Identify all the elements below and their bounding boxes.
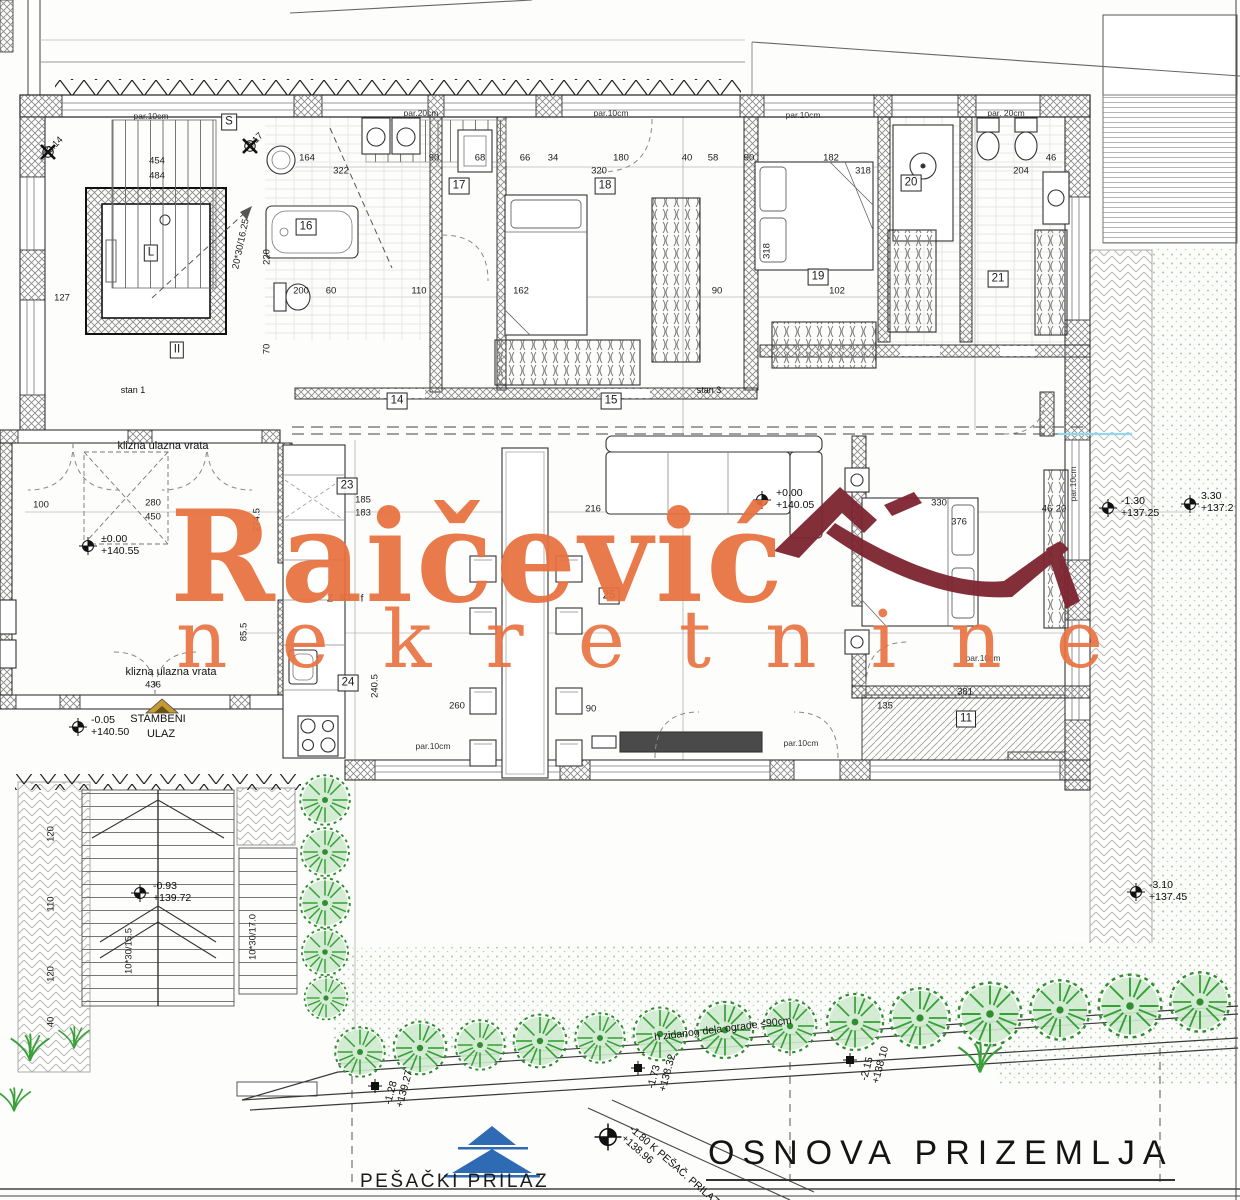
room-label: 20 [901, 175, 922, 192]
dimension-label: 40 [682, 153, 693, 164]
room-label: 17 [449, 178, 470, 195]
dimension-label: 318 [855, 166, 871, 177]
dimension-label: 68 [475, 153, 486, 164]
level-marker: 3.30+137.2 [1201, 491, 1233, 515]
room-label: 21 [988, 271, 1009, 288]
dimension-label: 381 [957, 687, 973, 698]
dimension-label: 20*30/16.25 [230, 218, 251, 270]
dimension-label: 260 [449, 701, 465, 712]
annotation: stan 1 [121, 385, 146, 395]
wall-note: par.10cm [784, 738, 819, 748]
dimension-label: 182 [823, 153, 839, 164]
level-marker-absolute-level: +139.72 [153, 893, 191, 905]
dimension-label: 180 [613, 153, 629, 164]
room-label: 19 [808, 269, 829, 286]
dimension-label: 90 [429, 153, 440, 164]
dimension-label: 320 [591, 166, 607, 177]
dimension-label: -2.17 [242, 130, 265, 153]
annotation: stan 3 [697, 385, 722, 395]
annotation: ULAZ [147, 728, 175, 740]
level-marker-absolute-level: +137.45 [1149, 892, 1187, 904]
dimension-label: 280 [145, 498, 161, 509]
room-label: 15 [601, 393, 622, 410]
level-marker-relative-level: -0.93 [153, 881, 191, 893]
level-marker-relative-level: -1.30 [1121, 496, 1159, 508]
dimension-label: 66 [520, 153, 531, 164]
dimension-label: 200 [293, 286, 309, 297]
dimension-label: 34 [548, 153, 559, 164]
dimension-label: 110 [411, 286, 426, 297]
level-marker: -1.30+137.25 [1121, 496, 1159, 520]
room-label: S [221, 114, 237, 131]
dimension-label: 454 [149, 156, 165, 167]
level-marker-relative-level: ±0.00 [101, 534, 139, 546]
level-marker-absolute-level: +137.2 [1201, 503, 1233, 515]
dimension-label: 120 [46, 966, 57, 982]
dimension-label: 58 [708, 153, 719, 164]
dimension-label: 220 [262, 249, 273, 265]
dimension-label: 60 [326, 286, 337, 297]
wall-note: par. 20cm [987, 108, 1024, 118]
level-marker: ±0.00+140.55 [101, 534, 139, 558]
room-label: 18 [595, 178, 616, 195]
dimension-label: 376 [951, 517, 967, 528]
dimension-label: 46 [1042, 504, 1053, 515]
annotation: klizna ulazna vrata [117, 440, 208, 452]
dimension-label: 100 [33, 500, 49, 511]
dimension-label: 10*30/15.5 [124, 928, 135, 974]
level-marker: -3.10+137.45 [1149, 880, 1187, 904]
dimension-label: 450 [145, 512, 161, 523]
level-marker: -1.28+139.27 [383, 1066, 416, 1109]
level-marker-absolute-level: +140.50 [91, 727, 129, 739]
dimension-label: 90 [712, 286, 723, 297]
level-marker: -2.15+138.10 [859, 1042, 892, 1085]
dimension-label: 162 [513, 286, 529, 297]
dimension-label: 10*30/17.0 [248, 914, 259, 960]
room-label: 14 [387, 393, 408, 410]
wall-note: par.10cm [594, 108, 629, 118]
dimension-label: 46 [1046, 153, 1057, 164]
dimension-label: 322 [333, 166, 349, 177]
dimension-label: 40 [46, 1017, 57, 1028]
level-marker-absolute-level: +140.55 [101, 546, 139, 558]
room-label: L [144, 245, 158, 262]
wall-note: par.10cm [786, 110, 821, 120]
dimension-label: 484 [149, 171, 165, 182]
dimension-label: 120 [46, 826, 57, 842]
level-marker: -1.80 K PEŠAČ. PRILAZ+138.96 [619, 1124, 721, 1200]
wall-note: par.20cm [404, 108, 439, 118]
dimension-label: 70 [262, 344, 273, 355]
floor-plan-page: SLII161718192021141523242511454484127164… [0, 0, 1240, 1200]
level-marker: -1.73+138.32 [646, 1050, 679, 1093]
drawing-title: OSNOVA PRIZEMLJA [708, 1134, 1174, 1173]
wall-note: par.10cm [134, 111, 169, 121]
level-marker-relative-level: -3.10 [1149, 880, 1187, 892]
dimension-label: 436 [145, 680, 161, 691]
wall-note: par.10cm [416, 741, 451, 751]
dimension-label: 110 [46, 896, 57, 911]
level-marker-absolute-level: +137.25 [1121, 508, 1159, 520]
room-label: 11 [956, 711, 976, 728]
dimension-label: 164 [299, 153, 315, 164]
level-marker: -0.93+139.72 [153, 881, 191, 905]
dimension-label: 204 [1013, 166, 1029, 177]
dimension-label: 90 [744, 153, 755, 164]
annotation: h zidanog dela ograde ≤90cm [654, 1015, 793, 1044]
room-label: 16 [296, 219, 317, 236]
dimension-label: 127 [54, 293, 70, 304]
level-marker-relative-level: -0.05 [91, 715, 129, 727]
annotation: STAMBENI [130, 713, 185, 725]
pedestrian-access-label: PEŠAČKI PRILAZ [360, 1171, 549, 1193]
dimension-label: 20 [1056, 504, 1067, 515]
room-label: II [170, 342, 184, 359]
level-marker-relative-level: 3.30 [1201, 491, 1233, 503]
dimension-label: 318 [762, 243, 773, 259]
dimension-label: 90 [586, 704, 597, 715]
watermark-brand-subtitle: nekretnine [176, 600, 1157, 680]
dimension-label: 330 [931, 498, 947, 509]
dimension-label: 135 [877, 701, 893, 712]
dimension-label: -2.14 [42, 134, 65, 157]
dimension-label: 102 [829, 286, 845, 297]
level-marker: -0.05+140.50 [91, 715, 129, 739]
wall-note: par.10cm [1068, 467, 1078, 502]
